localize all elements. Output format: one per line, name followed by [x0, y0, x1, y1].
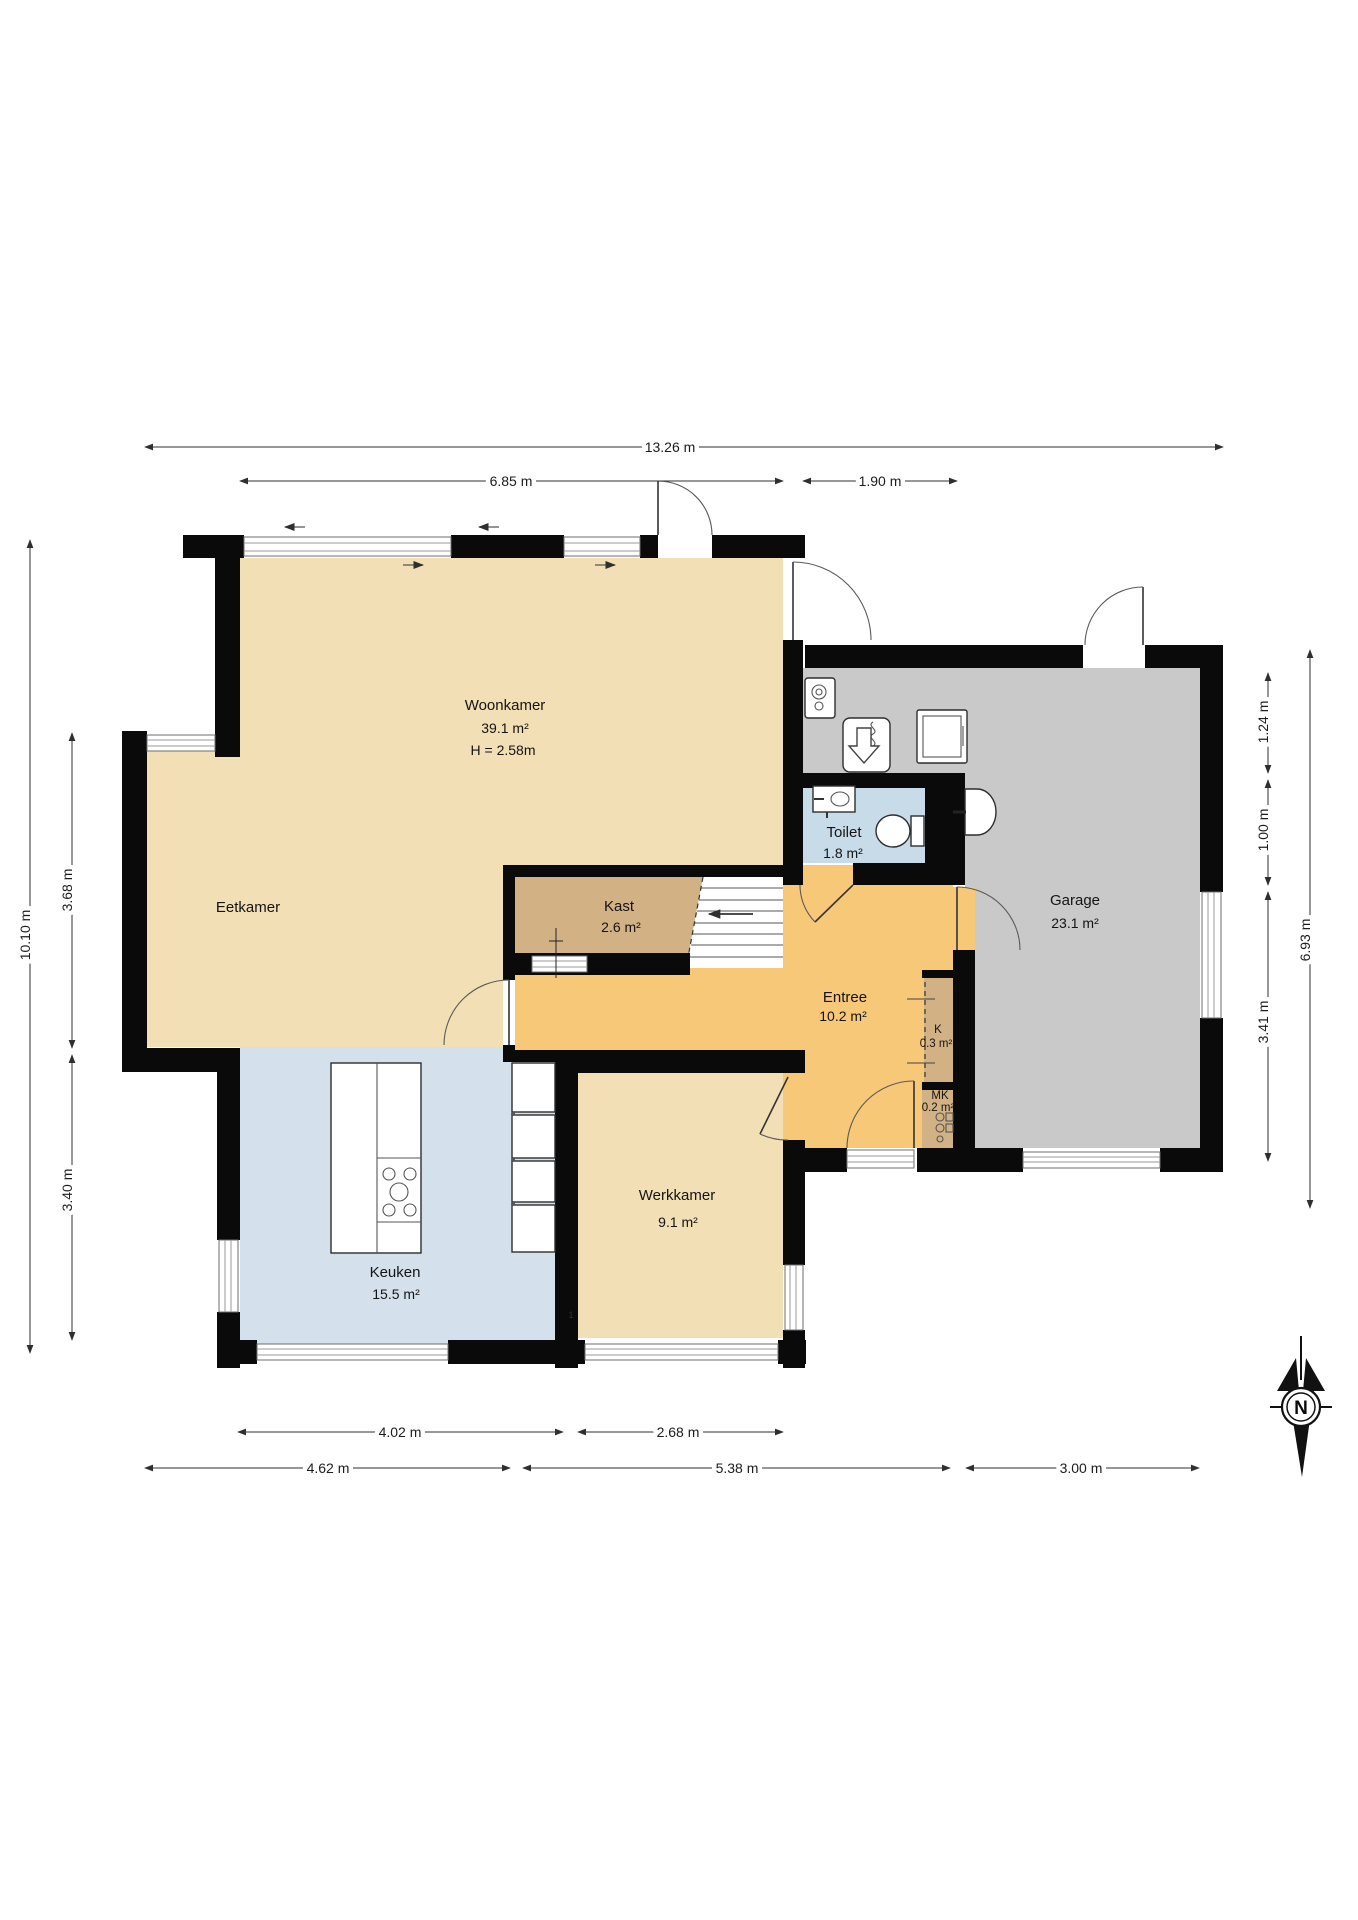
- dim-bottom-office: 2.68 m: [657, 1424, 700, 1440]
- compass-north-label: N: [1294, 1398, 1308, 1419]
- door-garage-north: [1085, 587, 1143, 645]
- dim-bottom-mid: 5.38 m: [716, 1460, 759, 1476]
- eetkamer-label: Eetkamer: [216, 899, 280, 916]
- toilet-bowl: [876, 815, 924, 847]
- compass-icon: N: [1270, 1336, 1332, 1477]
- floorplan-page: Woonkamer 39.1 m² H = 2.58m Eetkamer Kas…: [0, 0, 1358, 1920]
- woonkamer-area: 39.1 m²: [481, 720, 529, 736]
- room-werkkamer: [578, 1073, 783, 1338]
- kast-area: 2.6 m²: [601, 919, 641, 935]
- kitchen-counter: [511, 1063, 555, 1252]
- dim-right-seg1: 1.24 m: [1255, 701, 1271, 744]
- keuken-area: 15.5 m²: [372, 1286, 420, 1302]
- entree-label: Entree: [823, 989, 867, 1006]
- woonkamer-label: Woonkamer: [465, 697, 546, 714]
- dim-bottom-left: 4.62 m: [307, 1460, 350, 1476]
- boiler-icon: [805, 678, 835, 718]
- door-woonkamer-north: [658, 481, 712, 535]
- toilet-area: 1.8 m²: [823, 845, 863, 861]
- floorplan-canvas: Woonkamer 39.1 m² H = 2.58m Eetkamer Kas…: [0, 0, 1358, 1920]
- door-woonkamer-utility: [793, 562, 871, 640]
- k-label: K: [934, 1024, 942, 1036]
- washing-machine-icon: [917, 710, 967, 763]
- dim-bottom-right: 3.00 m: [1060, 1460, 1103, 1476]
- dim-top-right: 1.90 m: [859, 473, 902, 489]
- werkkamer-label: Werkkamer: [639, 1187, 715, 1204]
- garage-label: Garage: [1050, 892, 1100, 909]
- werkkamer-area: 9.1 m²: [658, 1214, 698, 1230]
- stairs: [686, 877, 783, 968]
- entree-area: 10.2 m²: [819, 1008, 867, 1024]
- k-area: 0.3 m²: [920, 1038, 953, 1050]
- dim-top-left: 6.85 m: [490, 473, 533, 489]
- annotation-mark: 1: [568, 1310, 573, 1320]
- dim-left-upper: 3.68 m: [59, 869, 75, 912]
- mk-label: MK: [931, 1090, 949, 1102]
- kitchen-island: [331, 1063, 421, 1253]
- dim-bottom-kitchen: 4.02 m: [379, 1424, 422, 1440]
- dim-top-total: 13.26 m: [645, 439, 696, 455]
- dim-left-total: 10.10 m: [17, 910, 33, 961]
- dim-right-total: 6.93 m: [1297, 919, 1313, 962]
- woonkamer-height: H = 2.58m: [471, 742, 536, 758]
- garage-area: 23.1 m²: [1051, 915, 1099, 931]
- mk-area: 0.2 m²: [922, 1102, 955, 1114]
- laundry-chute-icon: [843, 718, 890, 772]
- keuken-label: Keuken: [370, 1264, 421, 1281]
- dim-right-seg2: 1.00 m: [1255, 809, 1271, 852]
- toilet-label: Toilet: [826, 824, 862, 841]
- kast-label: Kast: [604, 898, 635, 915]
- dim-left-lower: 3.40 m: [59, 1169, 75, 1212]
- dim-right-seg3: 3.41 m: [1255, 1001, 1271, 1044]
